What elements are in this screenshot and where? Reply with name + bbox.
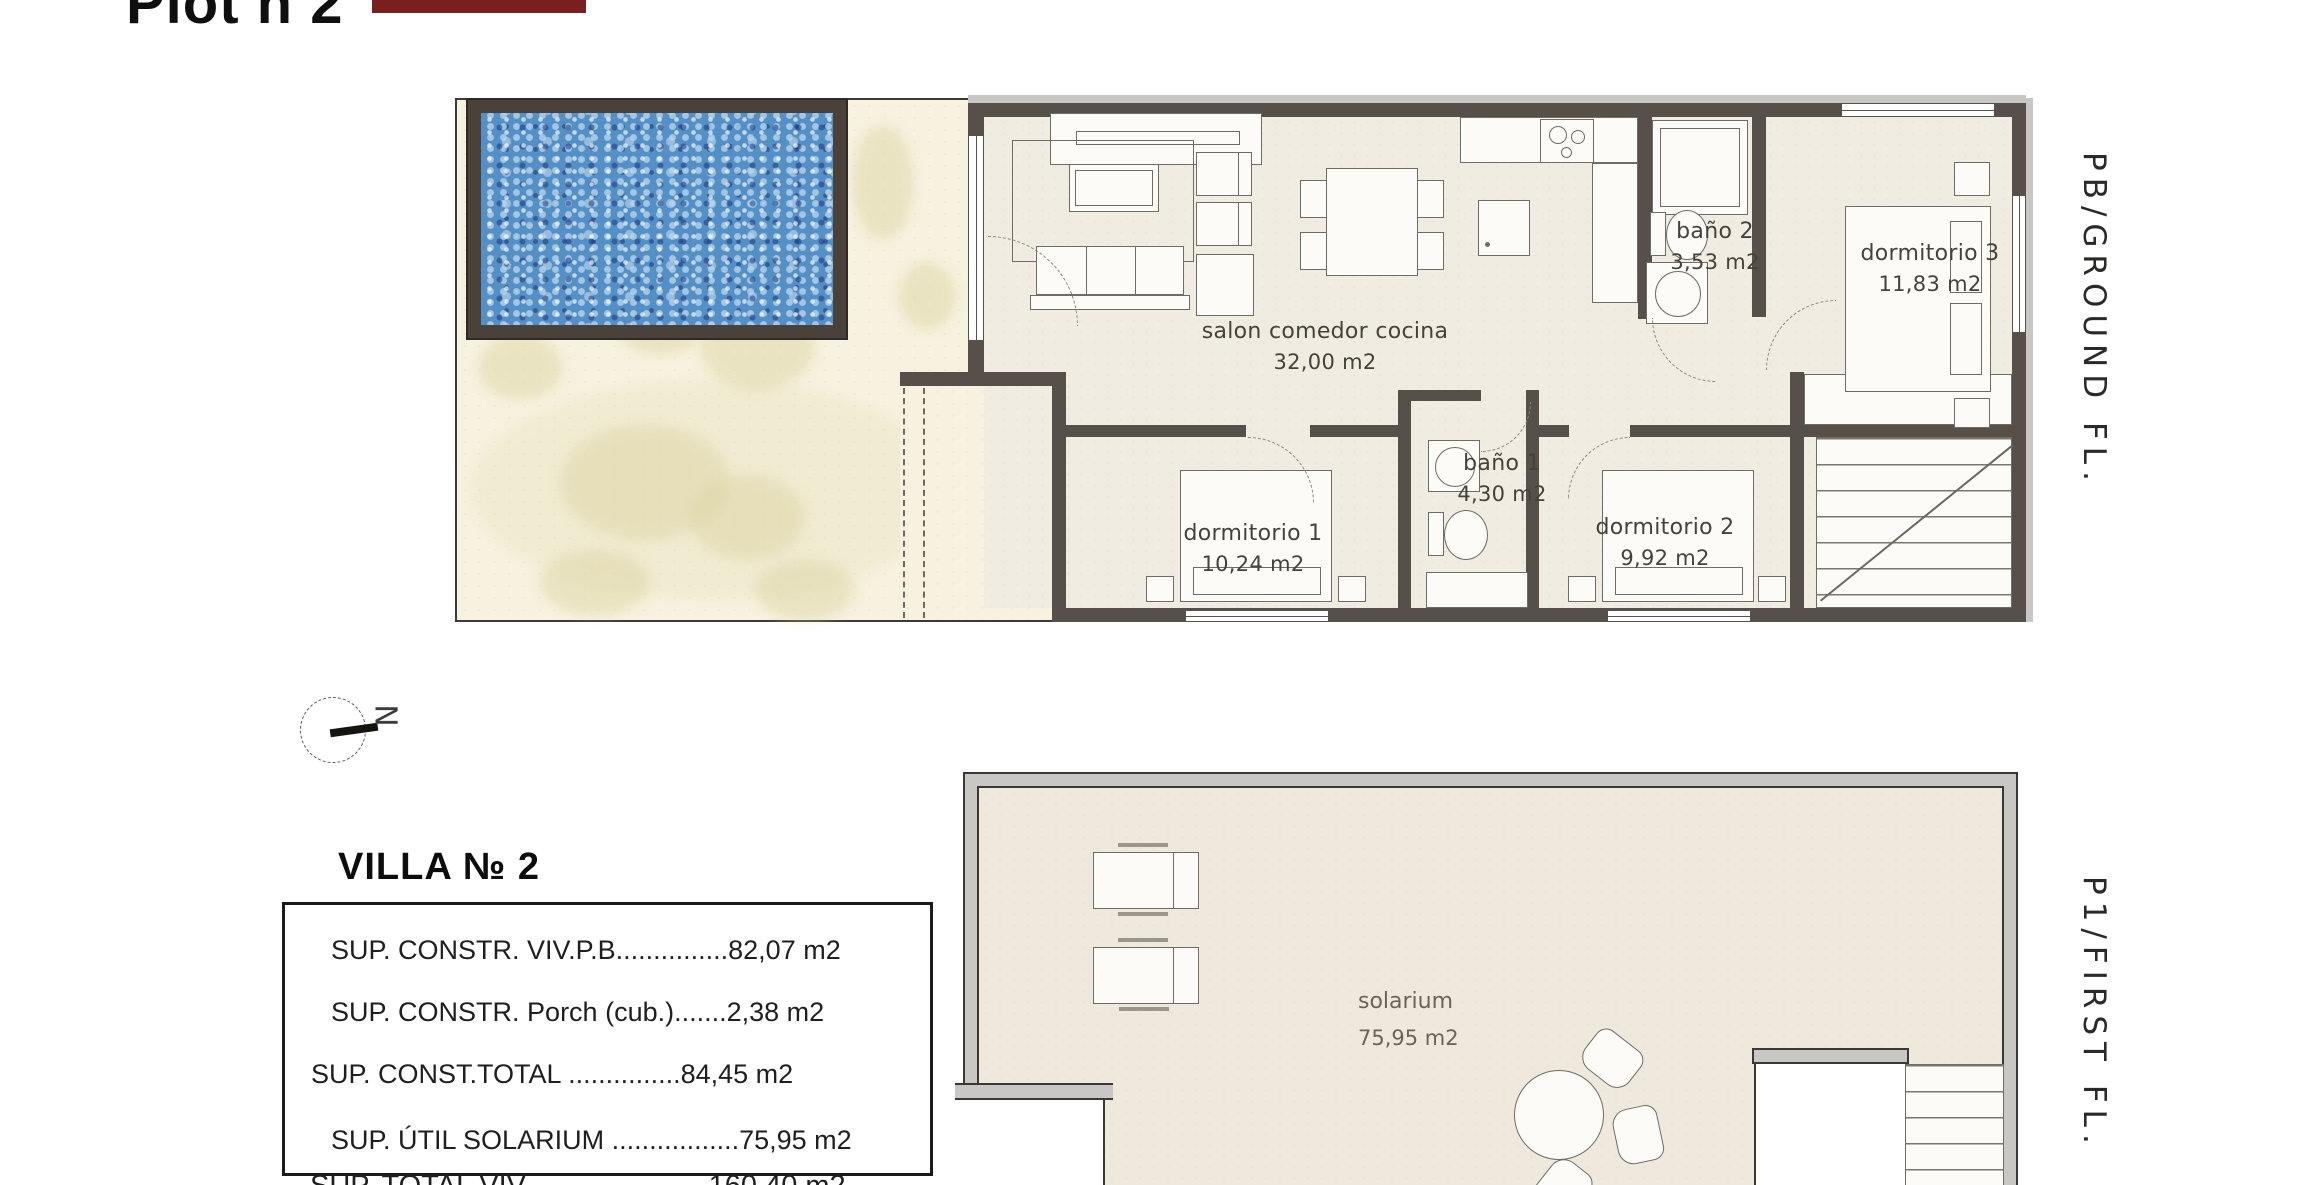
porch-dashed-line <box>923 388 925 618</box>
dining-table <box>1326 168 1418 276</box>
room-name: salon comedor cocina <box>1150 316 1500 347</box>
redaction-bar <box>372 0 586 13</box>
summary-footer-row: SUP. TOTAL VIV.......................160… <box>310 1170 846 1185</box>
coffee-table <box>1069 164 1159 212</box>
swimming-pool <box>468 100 846 338</box>
patio-table <box>1514 1070 1604 1160</box>
wall-corridor <box>1066 425 1246 437</box>
room-name: baño 1 <box>1432 448 1572 479</box>
toilet-tank <box>1428 512 1444 556</box>
room-area: 11,83 m2 <box>1840 269 2020 300</box>
lounger-pillow <box>1173 948 1198 1003</box>
toilet-bowl <box>1444 510 1488 560</box>
north-letter-glyph: N <box>368 704 403 726</box>
wall-corridor <box>1310 425 1398 437</box>
cooktop <box>1540 119 1594 163</box>
room-name: dormitorio 3 <box>1840 238 2020 269</box>
armchair-line <box>1238 203 1239 245</box>
sun-lounger <box>1093 947 1199 1004</box>
floorplan-sheet: Plot n 2 <box>0 0 2304 1185</box>
page-title: Plot n 2 <box>126 0 343 37</box>
burner <box>1549 126 1567 144</box>
villa-summary-box: SUP. CONSTR. VIV.P.B...............82,07… <box>282 902 933 1176</box>
room-name: solarium <box>1358 984 1459 1020</box>
window-living <box>968 136 984 340</box>
summary-row: SUP. CONST.TOTAL ...............84,45 m2 <box>311 1059 793 1090</box>
towel-bar <box>1118 912 1168 916</box>
shower-tray <box>1660 128 1740 207</box>
room-label-bath2: baño 2 3,53 m2 <box>1640 216 1790 278</box>
nightstand <box>1954 398 1990 428</box>
wall-left-lower <box>1052 386 1066 608</box>
wall-outer-trim <box>968 95 2026 103</box>
nightstand <box>1338 576 1366 602</box>
summary-row: SUP. CONSTR. Porch (cub.).......2,38 m2 <box>331 997 824 1028</box>
towel-bar <box>1119 1007 1169 1011</box>
floor-label-ground: PB/GROUND FL. <box>2076 152 2112 488</box>
north-letter: N <box>374 698 396 733</box>
shower <box>1652 120 1748 215</box>
burner <box>1561 147 1572 158</box>
ff-staircase <box>1905 1064 2004 1185</box>
sink-dot <box>1485 242 1490 247</box>
room-area: 10,24 m2 <box>1168 549 1338 580</box>
watercolor-stain <box>478 335 563 400</box>
towel-bar <box>1118 938 1168 942</box>
wall-bedroom2-top <box>1539 425 1569 437</box>
pillow <box>1950 303 1982 375</box>
armchair <box>1196 202 1252 246</box>
porch-dashed-line <box>903 388 905 618</box>
room-label-salon: salon comedor cocina 32,00 m2 <box>1150 316 1500 378</box>
burner <box>1571 130 1585 144</box>
ff-stair-room <box>1754 1064 1905 1185</box>
kitchen-island <box>1478 200 1530 256</box>
armchair <box>1196 152 1252 196</box>
room-label-bath1: baño 1 4,30 m2 <box>1432 448 1572 510</box>
sun-lounger <box>1093 852 1199 909</box>
room-area: 4,30 m2 <box>1432 479 1572 510</box>
wall-outer-trim <box>2026 98 2033 622</box>
room-name: dormitorio 1 <box>1168 518 1338 549</box>
window-bedroom2 <box>1608 610 1750 622</box>
coffee-table-inner <box>1075 170 1153 206</box>
window-bedroom3-top <box>1842 103 1994 117</box>
shower <box>1426 572 1528 608</box>
wall-bath1-left <box>1398 390 1411 608</box>
sofa-divider <box>1086 247 1087 294</box>
room-area: 9,92 m2 <box>1580 543 1750 574</box>
room-name: baño 2 <box>1640 216 1790 247</box>
lounger-pillow <box>1173 853 1198 908</box>
room-area: 3,53 m2 <box>1640 247 1790 278</box>
watercolor-wash <box>470 380 950 600</box>
wall-stairs-left <box>1790 372 1804 608</box>
pool-water <box>481 113 833 325</box>
wall-bath1-top <box>1411 390 1481 401</box>
summary-row: SUP. ÚTIL SOLARIUM .................75,9… <box>331 1125 852 1156</box>
watercolor-stain <box>898 262 956 330</box>
room-label-bedroom2: dormitorio 2 9,92 m2 <box>1580 512 1750 574</box>
ff-stair-wall <box>1752 1048 1909 1064</box>
room-label-bedroom3: dormitorio 3 11,83 m2 <box>1840 238 2020 300</box>
ff-void <box>963 1100 1105 1185</box>
summary-row: SUP. CONSTR. VIV.P.B...............82,07… <box>331 935 841 966</box>
room-label-bedroom1: dormitorio 1 10,24 m2 <box>1168 518 1338 580</box>
nightstand <box>1568 576 1596 602</box>
room-name: dormitorio 2 <box>1580 512 1750 543</box>
armchair-line <box>1238 153 1239 195</box>
watercolor-stain <box>852 125 914 240</box>
wall-bedroom2-top <box>1630 425 1790 437</box>
nightstand <box>1954 162 1990 196</box>
nightstand <box>1758 576 1786 602</box>
wall-right <box>2012 103 2026 622</box>
room-area: 32,00 m2 <box>1150 347 1500 378</box>
floor-label-first: P1/FIRST FL. <box>2076 876 2112 1151</box>
window-bedroom1 <box>1186 610 1328 622</box>
towel-bar <box>1118 843 1168 847</box>
room-label-solarium: solarium 75,95 m2 <box>1358 984 1459 1056</box>
ff-notch-wall <box>955 1083 1113 1100</box>
side-table <box>1196 254 1254 316</box>
sofa-divider <box>1135 247 1136 294</box>
wall-porch-top <box>900 372 1066 386</box>
room-area: 75,95 m2 <box>1358 1020 1459 1056</box>
villa-summary-title: VILLA № 2 <box>338 846 540 889</box>
kitchen-counter-side <box>1592 163 1638 303</box>
